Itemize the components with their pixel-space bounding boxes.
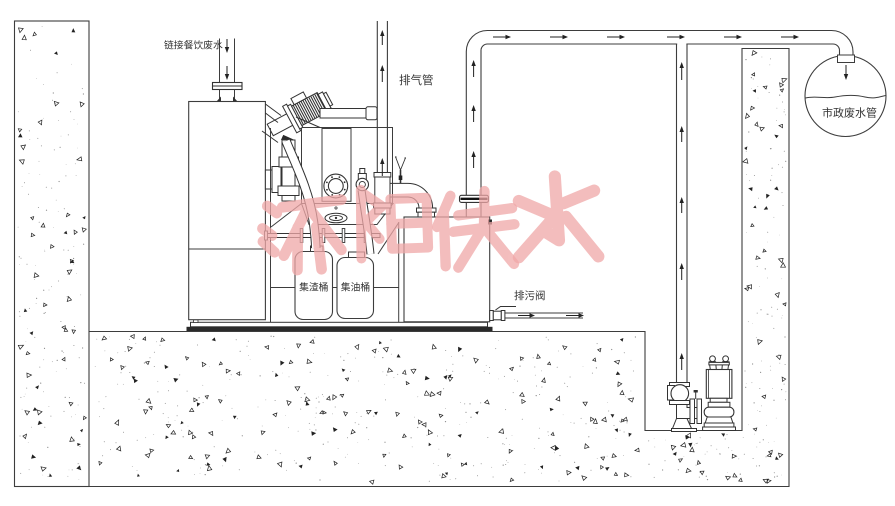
- svg-text:链接餐饮废水: 链接餐饮废水: [164, 39, 223, 52]
- svg-text:集油桶: 集油桶: [341, 281, 370, 294]
- svg-text:排污阀: 排污阀: [514, 289, 546, 302]
- svg-text:市政废水管: 市政废水管: [822, 106, 877, 120]
- svg-text:集渣桶: 集渣桶: [299, 281, 328, 294]
- svg-text:排气管: 排气管: [399, 73, 434, 87]
